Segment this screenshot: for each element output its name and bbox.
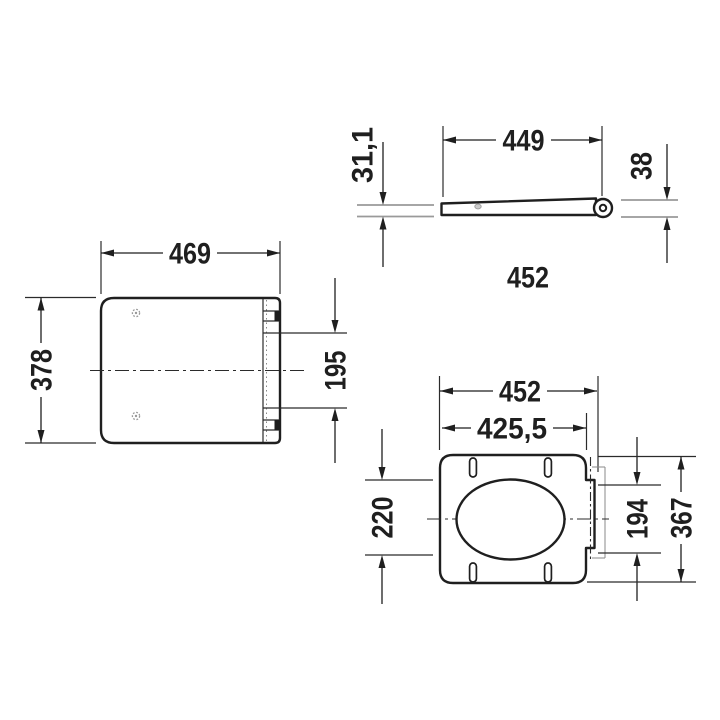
bumper-side <box>475 204 481 209</box>
seat-opening <box>457 480 565 560</box>
dim-label-452-overall: 452 <box>507 262 549 295</box>
hinge-block <box>275 311 281 321</box>
arrowhead-down <box>332 320 339 333</box>
arrowhead-up <box>38 298 45 311</box>
arrowhead-down <box>634 472 641 485</box>
arrowhead-right <box>267 250 280 257</box>
arrowhead-up <box>380 217 387 230</box>
arrowhead-down <box>664 187 671 200</box>
dim-label-449: 449 <box>503 125 545 158</box>
dim-label-31-1: 31,1 <box>347 127 380 183</box>
arrowhead-left <box>101 250 114 257</box>
dim-label-452: 452 <box>499 376 541 409</box>
dim-label-367: 367 <box>666 498 699 539</box>
technical-drawing-canvas: 449 31,1 38 452 469 <box>0 0 720 720</box>
hinge-block <box>275 420 281 430</box>
arrowhead-left <box>442 425 455 432</box>
arrowhead-right <box>573 425 586 432</box>
arrowhead-down <box>678 569 685 582</box>
dim-label-220: 220 <box>367 497 400 539</box>
dim-label-469: 469 <box>169 238 211 271</box>
arrowhead-right <box>584 388 597 395</box>
dim-label-378: 378 <box>26 349 59 391</box>
arrowhead-right <box>589 137 602 144</box>
arrowhead-down <box>38 430 45 443</box>
slot-top-right <box>545 458 552 477</box>
lid-top-view: 469 378 <box>25 238 353 464</box>
slot-bottom-right <box>545 563 552 582</box>
slot-bottom-left <box>470 563 477 582</box>
arrowhead-down <box>379 467 386 480</box>
arrowhead-up <box>664 217 671 230</box>
dim-label-194: 194 <box>622 499 655 539</box>
dim-label-425-5: 425,5 <box>477 413 547 446</box>
arrowhead-left <box>440 388 453 395</box>
dim-label-195: 195 <box>320 351 353 391</box>
arrowhead-up <box>332 408 339 421</box>
slot-top-left <box>470 458 477 477</box>
arrowhead-up <box>678 457 685 470</box>
arrowhead-down <box>380 192 387 205</box>
dim-label-38: 38 <box>626 152 659 180</box>
hinge-barrel-inner <box>600 205 606 211</box>
arrowhead-left <box>443 137 456 144</box>
side-profile-view: 449 31,1 38 452 <box>347 125 679 295</box>
seat-top-view: 452 425,5 220 <box>365 376 699 605</box>
technical-drawing: 449 31,1 38 452 469 <box>0 0 720 720</box>
arrowhead-up <box>634 553 641 566</box>
seat-profile-outline <box>442 199 597 216</box>
arrowhead-up <box>379 555 386 568</box>
